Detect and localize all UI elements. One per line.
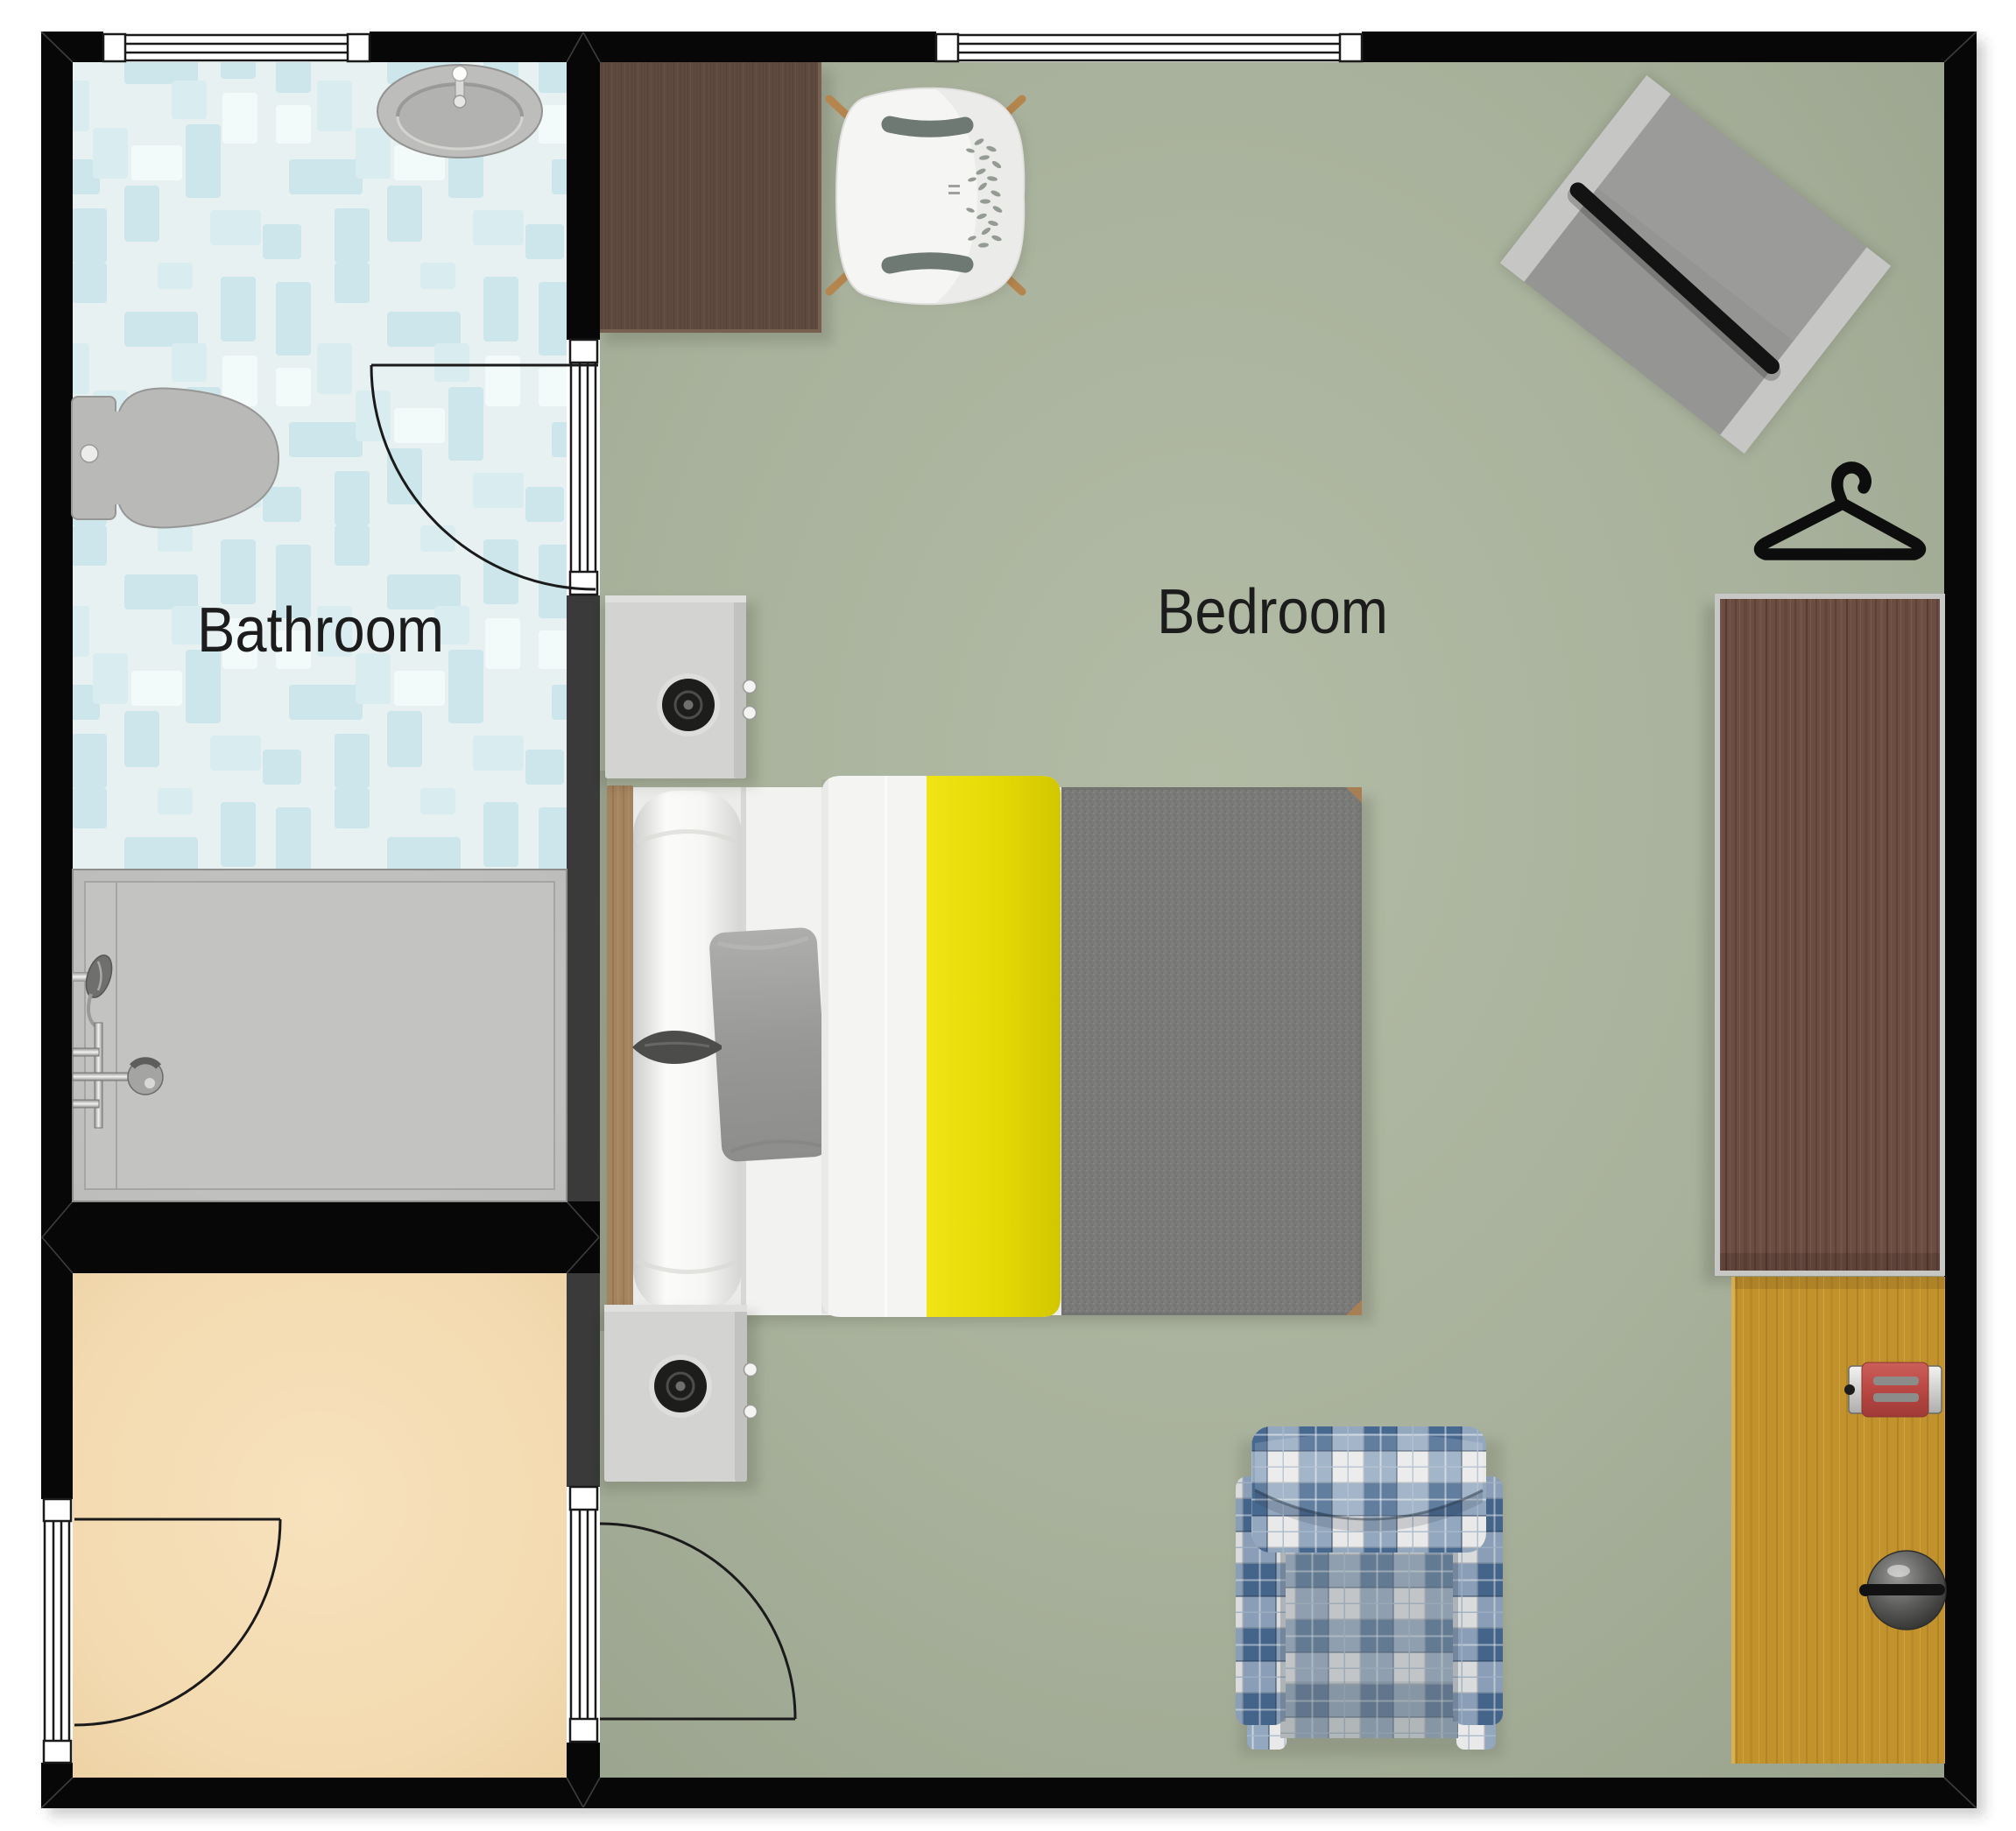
svg-text:Bathroom: Bathroom [197, 595, 444, 665]
svg-text:Bedroom: Bedroom [1157, 577, 1388, 647]
